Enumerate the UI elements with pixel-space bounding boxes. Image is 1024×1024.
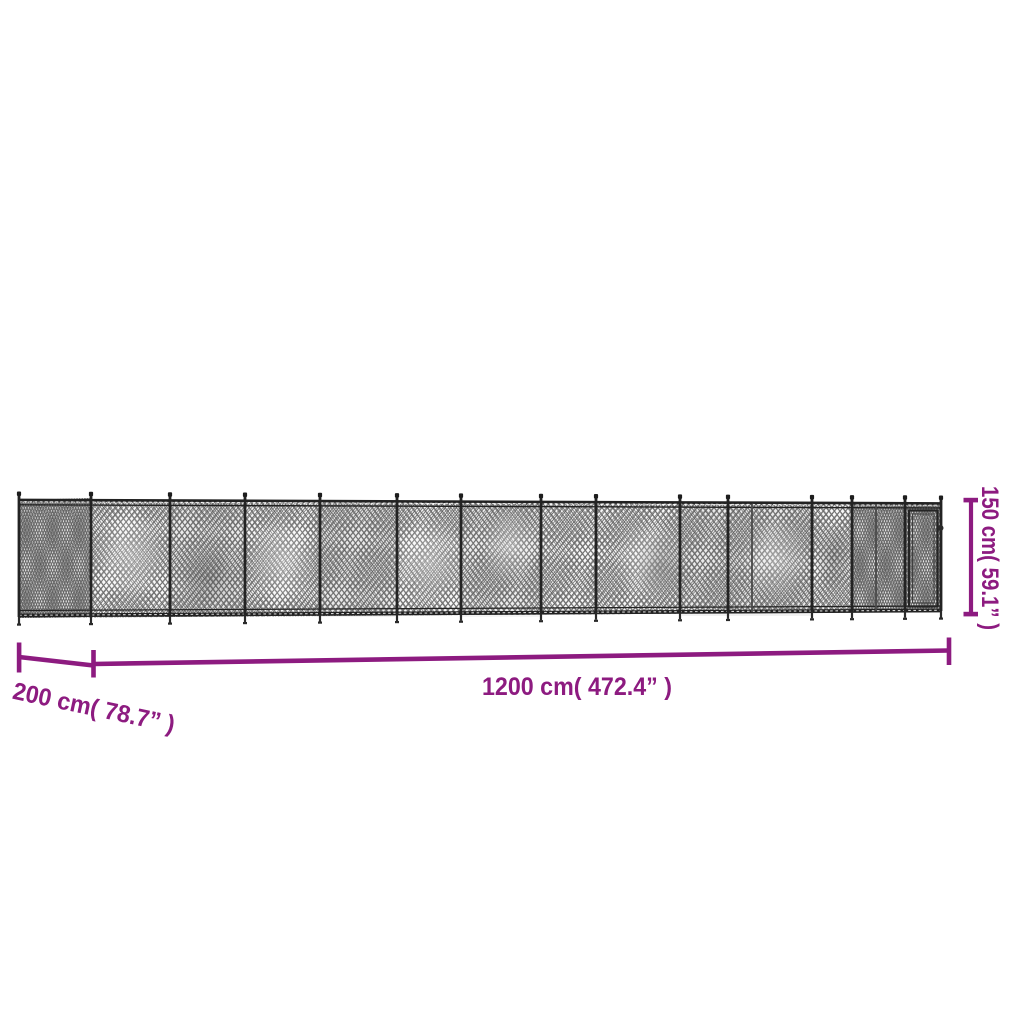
svg-text:1200 cm( 472.4” ): 1200 cm( 472.4” ) (482, 673, 672, 701)
svg-text:200 cm( 78.7” ): 200 cm( 78.7” ) (10, 678, 177, 739)
svg-text:150 cm( 59.1” ): 150 cm( 59.1” ) (976, 486, 1003, 630)
